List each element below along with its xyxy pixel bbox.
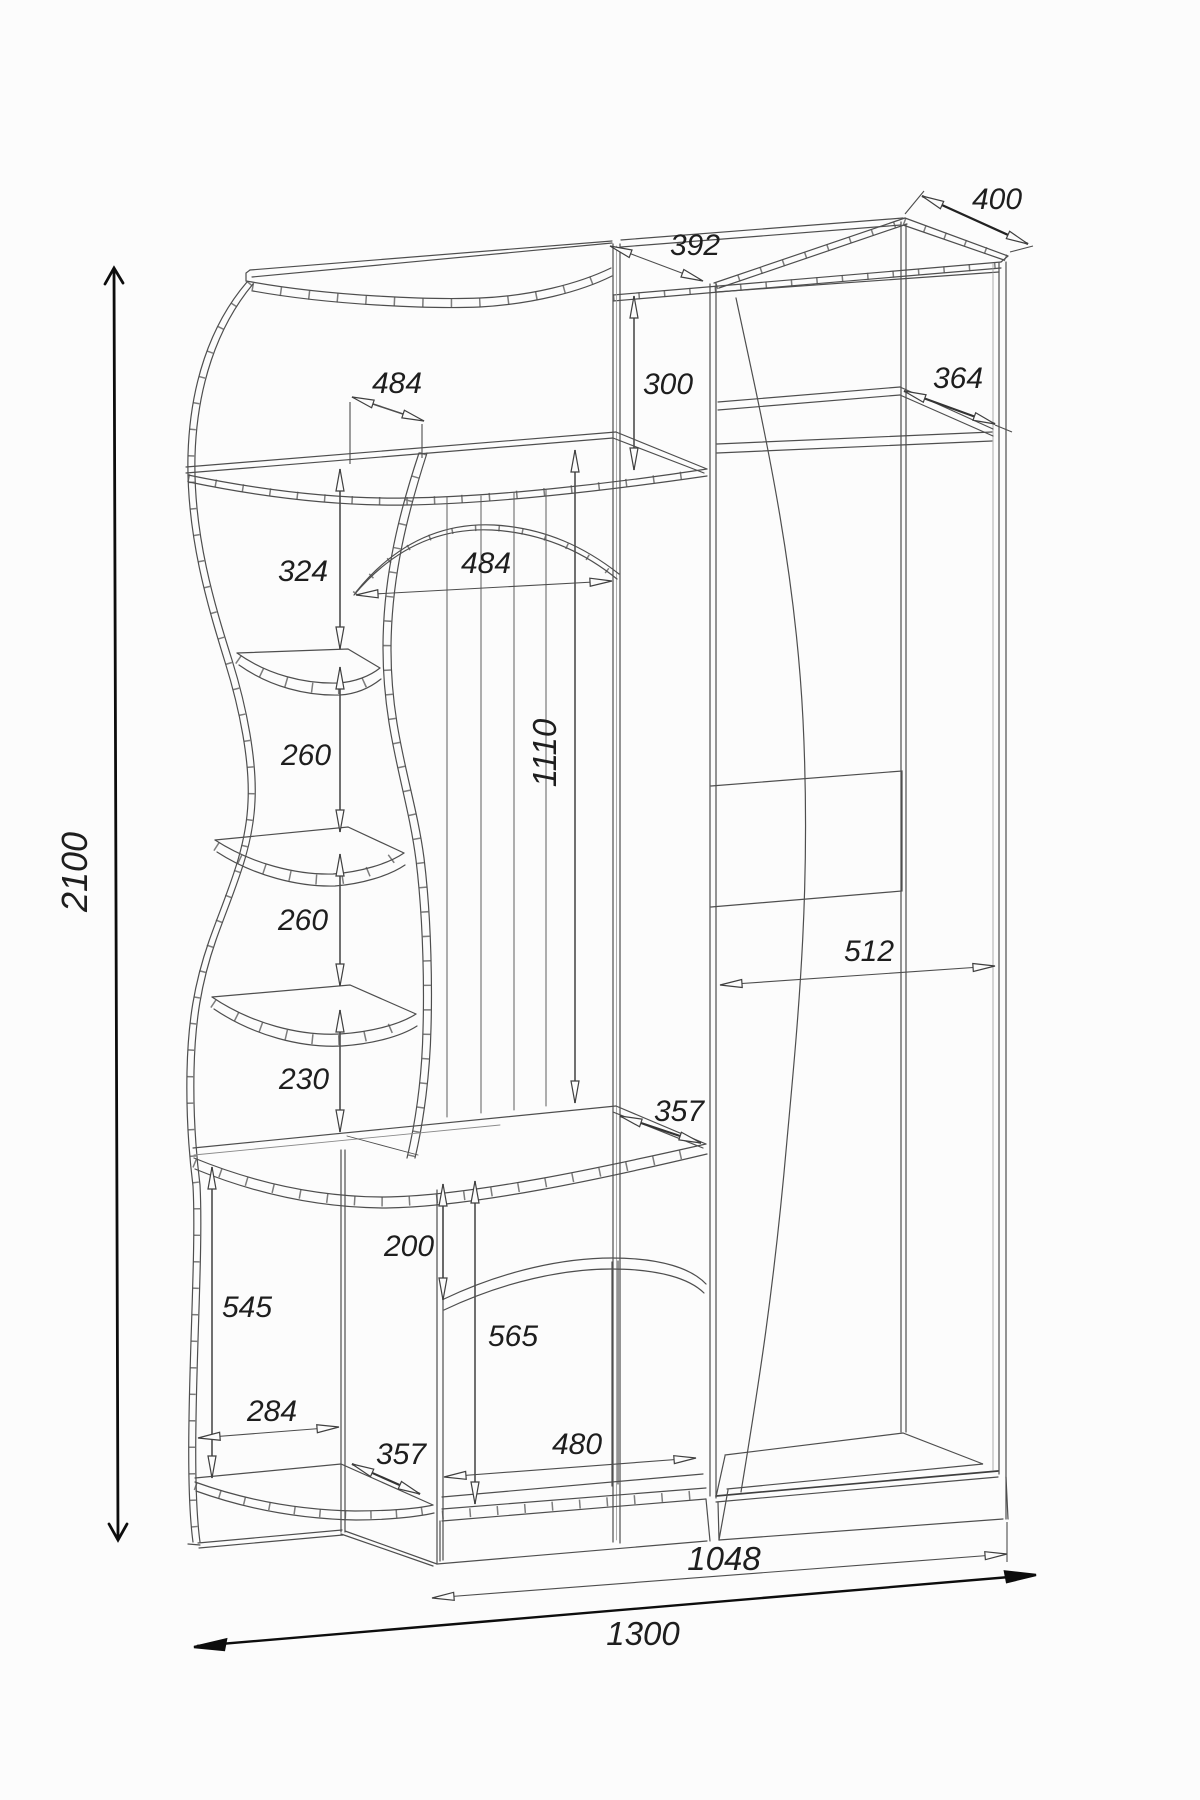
- svg-text:364: 364: [933, 362, 983, 395]
- svg-text:392: 392: [670, 229, 720, 262]
- svg-text:260: 260: [280, 739, 331, 772]
- svg-text:300: 300: [643, 368, 693, 401]
- svg-text:1110: 1110: [526, 718, 563, 787]
- svg-text:1048: 1048: [687, 1540, 761, 1577]
- svg-text:484: 484: [372, 367, 422, 400]
- svg-text:357: 357: [654, 1095, 705, 1128]
- svg-text:400: 400: [972, 183, 1022, 216]
- svg-text:324: 324: [278, 555, 328, 588]
- svg-text:2100: 2100: [54, 832, 95, 913]
- svg-text:284: 284: [246, 1395, 297, 1428]
- svg-text:480: 480: [552, 1428, 602, 1461]
- svg-text:545: 545: [222, 1291, 272, 1324]
- svg-text:200: 200: [383, 1230, 434, 1263]
- svg-text:357: 357: [376, 1438, 427, 1471]
- svg-text:512: 512: [844, 935, 894, 968]
- svg-text:260: 260: [277, 904, 328, 937]
- svg-text:484: 484: [461, 547, 511, 580]
- svg-text:565: 565: [488, 1320, 538, 1353]
- svg-text:230: 230: [278, 1063, 329, 1096]
- svg-text:1300: 1300: [606, 1615, 680, 1652]
